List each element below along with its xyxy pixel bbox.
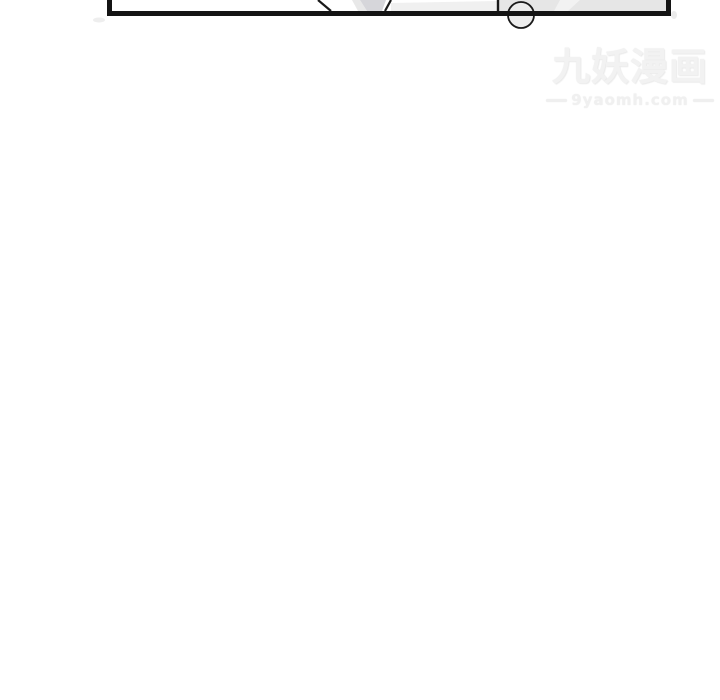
- watermark-dash-left: [546, 99, 567, 102]
- site-watermark: 九妖漫画 9yaomh.com: [546, 47, 714, 109]
- watermark-site-url: 9yaomh.com: [571, 91, 688, 109]
- corner-smudge-right: [671, 11, 677, 19]
- panel-border-right: [666, 0, 671, 16]
- panel-border-bottom: [107, 11, 671, 16]
- watermark-dash-right: [693, 99, 714, 102]
- watermark-url-row: 9yaomh.com: [546, 91, 714, 109]
- watermark-site-name: 九妖漫画: [546, 47, 714, 87]
- comic-page: 九妖漫画 9yaomh.com: [0, 0, 720, 700]
- panel-border-left: [107, 0, 112, 16]
- comic-panel-art: [0, 0, 720, 30]
- corner-smudge-left: [93, 18, 105, 23]
- comic-panel-fragment: [0, 0, 720, 30]
